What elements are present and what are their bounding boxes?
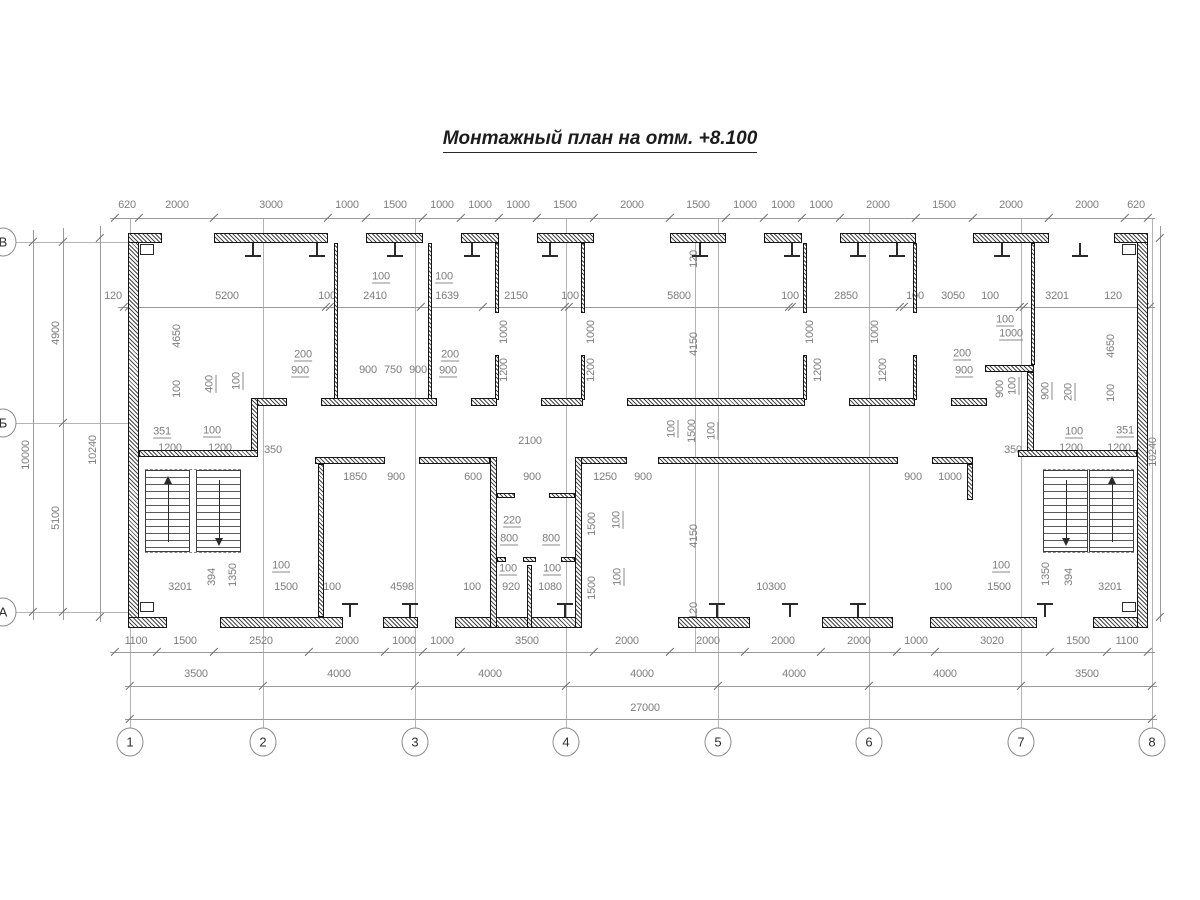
dim-label: 900 — [994, 380, 1006, 398]
dim-label: 1200 — [877, 358, 889, 382]
dim-label: 1000 — [506, 199, 530, 211]
dim-label: 4650 — [1105, 334, 1117, 358]
dim-label: 2000 — [847, 635, 871, 647]
wall-segment — [803, 355, 807, 400]
ibeam-icon — [564, 604, 566, 617]
dim-label: 5100 — [50, 506, 62, 530]
dim-label: 220 — [503, 515, 521, 528]
wall-segment — [251, 398, 258, 457]
dim-label: 1000 — [392, 635, 416, 647]
dim-line — [118, 307, 1155, 308]
dim-label: 1000 — [468, 199, 492, 211]
panel-joint-notch — [140, 244, 154, 255]
wall-segment — [803, 243, 807, 313]
panel-joint-notch — [1122, 602, 1136, 612]
dim-label: 920 — [502, 581, 520, 593]
dim-label: 1850 — [343, 471, 367, 483]
panel-joint-notch — [140, 602, 154, 612]
dim-label: 2150 — [504, 290, 528, 302]
dim-label: 2000 — [999, 199, 1023, 211]
wall-segment — [383, 617, 418, 628]
dim-label: 3500 — [1075, 668, 1099, 680]
dim-label: 620 — [118, 199, 136, 211]
stair-up-arrow-icon — [1108, 476, 1116, 484]
ibeam-icon — [850, 603, 866, 605]
dim-label: 394 — [206, 568, 218, 586]
dim-label: 800 — [500, 533, 518, 546]
dim-label: 100 — [561, 290, 579, 302]
ibeam-icon — [542, 255, 558, 257]
extension-line — [695, 243, 696, 652]
dim-label: 120 — [1104, 290, 1122, 302]
wall-segment — [581, 355, 585, 400]
dim-label: 4150 — [688, 332, 700, 356]
column-axis-bubble: 2 — [250, 728, 277, 757]
dim-label: 1500 — [553, 199, 577, 211]
wall-segment — [1031, 243, 1035, 365]
dim-label: 1200 — [585, 358, 597, 382]
dim-label: 1500 — [586, 576, 598, 600]
dim-label: 100 — [323, 581, 341, 593]
dim-label: 100 — [171, 380, 183, 398]
dim-label: 100 — [203, 425, 221, 438]
column-axis-bubble: 7 — [1008, 728, 1035, 757]
wall-segment — [523, 557, 536, 562]
dim-label: 2100 — [518, 435, 542, 447]
wall-segment — [471, 398, 497, 406]
ibeam-icon — [784, 255, 800, 257]
dim-label: 1639 — [435, 290, 459, 302]
wall-segment — [490, 457, 497, 628]
wall-segment — [967, 464, 973, 500]
wall-segment — [541, 398, 583, 406]
dim-label: 100 — [463, 581, 481, 593]
column-axis-bubble: 5 — [705, 728, 732, 757]
wall-segment — [561, 557, 575, 562]
dim-label: 1000 — [999, 328, 1023, 341]
wall-segment — [455, 617, 577, 628]
dim-label: 100 — [992, 560, 1010, 573]
stair-landing-line — [1043, 552, 1134, 553]
wall-segment — [913, 243, 917, 313]
dim-line — [63, 228, 64, 620]
column-axis-bubble: 6 — [856, 728, 883, 757]
wall-segment — [985, 365, 1034, 372]
wall-segment — [527, 565, 532, 628]
dim-label: 1100 — [1116, 635, 1139, 647]
ibeam-icon — [1037, 603, 1053, 605]
ibeam-icon — [464, 255, 480, 257]
wall-segment — [419, 457, 490, 464]
drawing-title: Монтажный план на отм. +8.100 — [443, 128, 758, 153]
wall-segment — [930, 617, 1037, 628]
dim-label: 900 — [439, 365, 457, 378]
dim-line — [100, 226, 101, 622]
stair-direction-line — [1066, 480, 1068, 542]
ibeam-icon — [409, 604, 411, 617]
ibeam-icon — [789, 604, 791, 617]
dim-label: 4150 — [688, 524, 700, 548]
dim-label: 400 — [204, 375, 217, 393]
dim-label: 200 — [953, 348, 971, 361]
ibeam-icon — [349, 604, 351, 617]
dim-label: 100 — [611, 511, 624, 529]
ibeam-icon — [709, 603, 725, 605]
dim-label: 100 — [1007, 377, 1020, 395]
dim-label: 2410 — [363, 290, 387, 302]
dim-label: 900 — [955, 365, 973, 378]
dim-label: 600 — [464, 471, 482, 483]
dim-label: 3201 — [168, 581, 192, 593]
dim-label: 900 — [904, 471, 922, 483]
dim-label: 1500 — [383, 199, 407, 211]
dim-label: 3500 — [515, 635, 539, 647]
dim-label: 2520 — [249, 635, 273, 647]
ibeam-icon — [857, 604, 859, 617]
dim-label: 2000 — [696, 635, 720, 647]
dim-label: 1000 — [938, 471, 962, 483]
dim-label: 350 — [264, 444, 282, 456]
stair-direction-line — [1112, 480, 1114, 542]
dim-label: 351 — [1116, 425, 1134, 438]
dim-line — [125, 686, 1157, 687]
dim-label: 1000 — [430, 199, 454, 211]
dim-label: 4000 — [782, 668, 806, 680]
dim-label: 3020 — [980, 635, 1004, 647]
dim-label: 100 — [231, 372, 244, 390]
wall-segment — [1027, 372, 1034, 457]
dim-line — [110, 218, 1155, 219]
dim-label: 100 — [781, 290, 799, 302]
dim-label: 100 — [934, 581, 952, 593]
ibeam-icon — [387, 255, 403, 257]
dim-label: 3201 — [1098, 581, 1122, 593]
dim-label: 1000 — [498, 320, 510, 344]
dim-label: 100 — [666, 420, 679, 438]
column-axis-bubble: 1 — [117, 728, 144, 757]
wall-segment — [973, 233, 1049, 243]
dim-label: 4000 — [478, 668, 502, 680]
ibeam-icon — [309, 255, 325, 257]
column-axis-bubble: 8 — [1139, 728, 1166, 757]
dim-label: 900 — [1040, 382, 1053, 400]
wall-segment — [497, 493, 515, 498]
wall-segment — [951, 398, 987, 406]
dim-label: 1200 — [812, 358, 824, 382]
stair-down-arrow-icon — [1062, 538, 1070, 546]
dim-label: 1500 — [586, 512, 598, 536]
drawing-title-wrap: Монтажный план на отм. +8.100 — [0, 128, 1200, 153]
dim-label: 2000 — [1075, 199, 1099, 211]
dim-label: 1500 — [274, 581, 298, 593]
dim-label: 1500 — [686, 419, 698, 443]
ibeam-icon — [557, 603, 573, 605]
dim-label: 900 — [359, 364, 377, 376]
dim-label: 1200 — [498, 358, 510, 382]
ibeam-icon — [889, 255, 905, 257]
dim-label: 10240 — [87, 435, 99, 465]
wall-segment — [537, 233, 594, 243]
ibeam-icon — [692, 255, 708, 257]
panel-joint-notch — [1122, 244, 1136, 255]
wall-segment — [849, 398, 915, 406]
wall-segment — [128, 233, 139, 628]
dim-label: 1000 — [585, 320, 597, 344]
dim-line — [125, 719, 1157, 720]
ibeam-icon — [245, 255, 261, 257]
dim-label: 200 — [294, 349, 312, 362]
dim-label: 4650 — [171, 324, 183, 348]
wall-segment — [495, 355, 499, 400]
stair-direction-line — [168, 480, 170, 542]
dim-label: 120 — [104, 290, 122, 302]
dim-label: 100 — [372, 271, 390, 284]
dim-label: 1500 — [932, 199, 956, 211]
wall-segment — [318, 464, 324, 617]
wall-segment — [253, 398, 287, 406]
stair-up-arrow-icon — [164, 476, 172, 484]
dim-label: 5200 — [215, 290, 239, 302]
dim-label: 100 — [981, 290, 999, 302]
dim-label: 100 — [543, 563, 561, 576]
dim-label: 1000 — [809, 199, 833, 211]
dim-label: 1350 — [1040, 562, 1052, 586]
dim-label: 100 — [435, 271, 453, 284]
wall-segment — [1018, 450, 1137, 457]
ibeam-icon — [782, 603, 798, 605]
dim-label: 100 — [1105, 384, 1117, 402]
dim-label: 100 — [706, 422, 719, 440]
row-axis-bubble: В — [0, 228, 17, 257]
dim-label: 1000 — [771, 199, 795, 211]
dim-label: 100 — [499, 563, 517, 576]
wall-segment — [1093, 617, 1138, 628]
ibeam-icon — [716, 604, 718, 617]
dim-label: 3050 — [941, 290, 965, 302]
wall-segment — [932, 457, 973, 464]
dim-label: 4000 — [630, 668, 654, 680]
dim-label: 394 — [1063, 568, 1075, 586]
wall-segment — [366, 233, 423, 243]
stair-down-arrow-icon — [215, 538, 223, 546]
dim-label: 1500 — [173, 635, 197, 647]
column-axis-bubble: 3 — [402, 728, 429, 757]
wall-segment — [128, 617, 167, 628]
wall-segment — [214, 233, 328, 243]
dim-label: 4000 — [327, 668, 351, 680]
dim-label: 1000 — [733, 199, 757, 211]
dim-label: 200 — [441, 349, 459, 362]
stair-direction-line — [219, 480, 221, 542]
wall-segment — [495, 243, 499, 313]
dim-label: 10300 — [756, 581, 786, 593]
wall-segment — [334, 243, 338, 400]
dim-label: 100 — [996, 314, 1014, 327]
wall-segment — [575, 457, 582, 628]
dim-label: 100 — [612, 568, 625, 586]
wall-segment — [822, 617, 893, 628]
wall-segment — [913, 355, 917, 400]
wall-segment — [428, 243, 432, 400]
dim-label: 2000 — [620, 199, 644, 211]
ibeam-icon — [994, 255, 1010, 257]
dim-label: 900 — [523, 471, 541, 483]
dim-label: 27000 — [630, 702, 660, 714]
dim-label: 2000 — [771, 635, 795, 647]
dim-label: 10240 — [1147, 437, 1159, 467]
wall-segment — [670, 233, 726, 243]
dim-label: 2850 — [834, 290, 858, 302]
dim-label: 2000 — [866, 199, 890, 211]
dim-label: 750 — [384, 364, 402, 376]
wall-segment — [577, 457, 627, 464]
dim-label: 620 — [1127, 199, 1145, 211]
dim-label: 1080 — [538, 581, 562, 593]
dim-label: 4598 — [390, 581, 414, 593]
dim-label: 1350 — [227, 563, 239, 587]
dim-label: 4900 — [50, 321, 62, 345]
dim-label: 351 — [153, 426, 171, 439]
dim-label: 1000 — [869, 320, 881, 344]
drawing-canvas: Монтажный план на отм. +8.100 6202000300… — [0, 0, 1200, 900]
wall-segment — [315, 457, 385, 464]
wall-segment — [1137, 233, 1148, 628]
ibeam-icon — [402, 603, 418, 605]
dim-label: 200 — [1063, 383, 1076, 401]
row-axis-bubble: Б — [0, 409, 17, 438]
dim-label: 10000 — [20, 440, 32, 470]
wall-segment — [764, 233, 802, 243]
column-axis-bubble: 4 — [553, 728, 580, 757]
dim-label: 900 — [387, 471, 405, 483]
wall-segment — [1114, 233, 1148, 243]
dim-label: 100 — [1065, 426, 1083, 439]
stair-landing-line — [145, 552, 241, 553]
dim-label: 1100 — [125, 635, 148, 647]
wall-segment — [658, 457, 898, 464]
dim-label: 2000 — [615, 635, 639, 647]
wall-segment — [678, 617, 750, 628]
dim-label: 5800 — [667, 290, 691, 302]
dim-label: 900 — [409, 364, 427, 376]
dim-label: 900 — [291, 365, 309, 378]
dim-label: 2000 — [165, 199, 189, 211]
dim-label: 4000 — [933, 668, 957, 680]
ibeam-icon — [1072, 255, 1088, 257]
dim-label: 3201 — [1045, 290, 1069, 302]
dim-label: 1000 — [904, 635, 928, 647]
wall-segment — [461, 233, 499, 243]
wall-segment — [840, 233, 916, 243]
wall-segment — [321, 398, 437, 406]
dim-label: 3000 — [259, 199, 283, 211]
dim-label: 1000 — [804, 320, 816, 344]
dim-label: 800 — [542, 533, 560, 546]
wall-segment — [139, 450, 258, 457]
wall-segment — [581, 243, 585, 313]
dim-label: 1500 — [1066, 635, 1090, 647]
dim-line — [110, 652, 1155, 653]
wall-segment — [220, 617, 343, 628]
dim-label: 1500 — [987, 581, 1011, 593]
ibeam-icon — [342, 603, 358, 605]
dim-label: 3500 — [184, 668, 208, 680]
dim-line — [1160, 226, 1161, 622]
wall-segment — [128, 233, 162, 243]
dim-label: 1000 — [335, 199, 359, 211]
wall-segment — [549, 493, 575, 498]
dim-label: 2000 — [335, 635, 359, 647]
wall-segment — [627, 398, 805, 406]
ibeam-icon — [1044, 604, 1046, 617]
ibeam-icon — [850, 255, 866, 257]
wall-segment — [497, 557, 506, 562]
dim-label: 100 — [272, 560, 290, 573]
dim-label: 900 — [634, 471, 652, 483]
dim-label: 1250 — [593, 471, 617, 483]
row-axis-bubble: А — [0, 598, 17, 627]
dim-line — [33, 230, 34, 620]
dim-label: 1500 — [686, 199, 710, 211]
dim-label: 1000 — [430, 635, 454, 647]
